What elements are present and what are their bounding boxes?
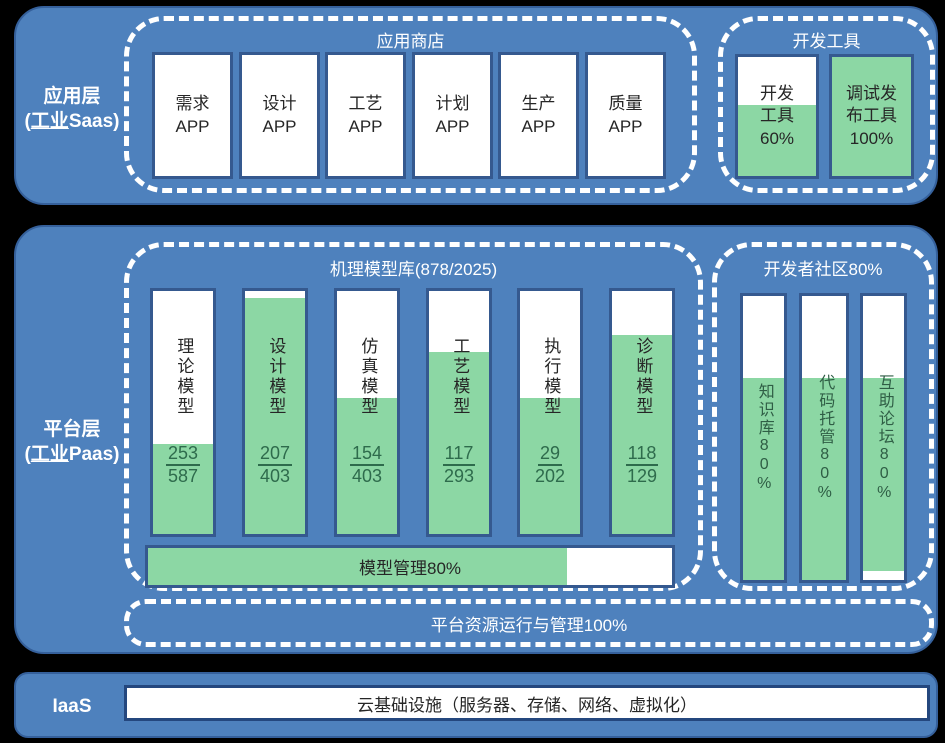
fraction-denominator: 293 <box>429 466 489 486</box>
model-column: 诊断模型 118 129 <box>609 288 675 537</box>
platform-layer-label: 平台层 (工业Paas) <box>16 417 128 467</box>
community-column: 知识库80% <box>740 293 787 583</box>
fraction-numerator: 253 <box>166 443 200 466</box>
resource-mgmt-label: 平台资源运行与管理100% <box>129 604 929 642</box>
model-column: 仿真模型 154 403 <box>334 288 400 537</box>
fraction-numerator: 118 <box>626 443 659 466</box>
community-column: 代码托管80% <box>799 293 849 583</box>
app-card: 计划 APP <box>412 52 493 179</box>
model-fraction: 154 403 <box>337 443 397 486</box>
fraction-numerator: 29 <box>538 443 562 466</box>
fraction-denominator: 403 <box>245 466 305 486</box>
fraction-denominator: 587 <box>153 466 213 486</box>
app-layer: 应用层 (工业Saas) 应用商店 需求 APP 设计 APP 工艺 APP <box>14 6 938 205</box>
iaas-bar-text: 云基础设施（服务器、存储、网络、虚拟化） <box>357 691 697 716</box>
app-card: 生产 APP <box>498 52 579 179</box>
model-name: 仿真模型 <box>337 337 397 417</box>
model-fraction: 29 202 <box>520 443 580 486</box>
platform-layer-label-line2: (工业Paas) <box>24 444 119 465</box>
fraction-numerator: 117 <box>443 443 476 466</box>
platform-layer: 平台层 (工业Paas) 机理模型库(878/2025) 理论模型 253 58… <box>14 225 938 654</box>
model-mgmt-bar: 模型管理80% <box>145 545 675 588</box>
iaas-layer: IaaS 云基础设施（服务器、存储、网络、虚拟化） <box>14 672 938 738</box>
app-card: 质量 APP <box>585 52 666 179</box>
platform-layer-label-line1: 平台层 <box>43 419 100 440</box>
model-name: 设计模型 <box>245 337 305 417</box>
fraction-denominator: 403 <box>337 466 397 486</box>
fraction-denominator: 202 <box>520 466 580 486</box>
architecture-diagram: 应用层 (工业Saas) 应用商店 需求 APP 设计 APP 工艺 APP <box>0 0 945 743</box>
iaas-bar: 云基础设施（服务器、存储、网络、虚拟化） <box>124 685 930 721</box>
model-fraction: 117 293 <box>429 443 489 486</box>
model-column: 设计模型 207 403 <box>242 288 308 537</box>
app-card: 工艺 APP <box>325 52 406 179</box>
app-card-title: 计划 APP <box>415 55 490 176</box>
community-label: 互助论坛80% <box>863 296 904 580</box>
community-label: 代码托管80% <box>802 296 846 580</box>
app-layer-label-line2: (工业Saas) <box>24 111 119 132</box>
resource-mgmt-box: 平台资源运行与管理100% <box>124 599 934 647</box>
model-name: 工艺模型 <box>429 337 489 417</box>
model-name: 执行模型 <box>520 337 580 417</box>
app-layer-label: 应用层 (工业Saas) <box>16 84 128 134</box>
community-column: 互助论坛80% <box>860 293 907 583</box>
model-fraction: 207 403 <box>245 443 305 486</box>
app-layer-label-line1: 应用层 <box>43 86 100 107</box>
model-mgmt-label: 模型管理80% <box>148 548 672 585</box>
model-column: 工艺模型 117 293 <box>426 288 492 537</box>
community-title: 开发者社区80% <box>717 255 929 280</box>
model-fraction: 253 587 <box>153 443 213 486</box>
app-card-title: 需求 APP <box>155 55 230 176</box>
gauge-label: 开发 工具 60% <box>738 57 816 176</box>
gauge-label: 调试发 布工具 100% <box>832 57 911 176</box>
model-name: 理论模型 <box>153 337 213 417</box>
model-fraction: 118 129 <box>612 443 672 486</box>
dev-tool-gauge: 调试发 布工具 100% <box>829 54 914 179</box>
model-column: 理论模型 253 587 <box>150 288 216 537</box>
model-column: 执行模型 29 202 <box>517 288 583 537</box>
fraction-numerator: 207 <box>258 443 292 466</box>
fraction-numerator: 154 <box>350 443 384 466</box>
dev-tools-title: 开发工具 <box>723 27 930 52</box>
app-card-title: 设计 APP <box>242 55 317 176</box>
app-store-title: 应用商店 <box>129 27 692 52</box>
community-label: 知识库80% <box>743 296 784 580</box>
app-card-title: 质量 APP <box>588 55 663 176</box>
model-name: 诊断模型 <box>612 337 672 417</box>
app-card: 需求 APP <box>152 52 233 179</box>
model-library-title: 机理模型库(878/2025) <box>129 255 698 280</box>
dev-tool-gauge: 开发 工具 60% <box>735 54 819 179</box>
app-card-title: 生产 APP <box>501 55 576 176</box>
fraction-denominator: 129 <box>612 466 672 486</box>
app-card: 设计 APP <box>239 52 320 179</box>
iaas-layer-label: IaaS <box>16 694 128 719</box>
app-card-title: 工艺 APP <box>328 55 403 176</box>
